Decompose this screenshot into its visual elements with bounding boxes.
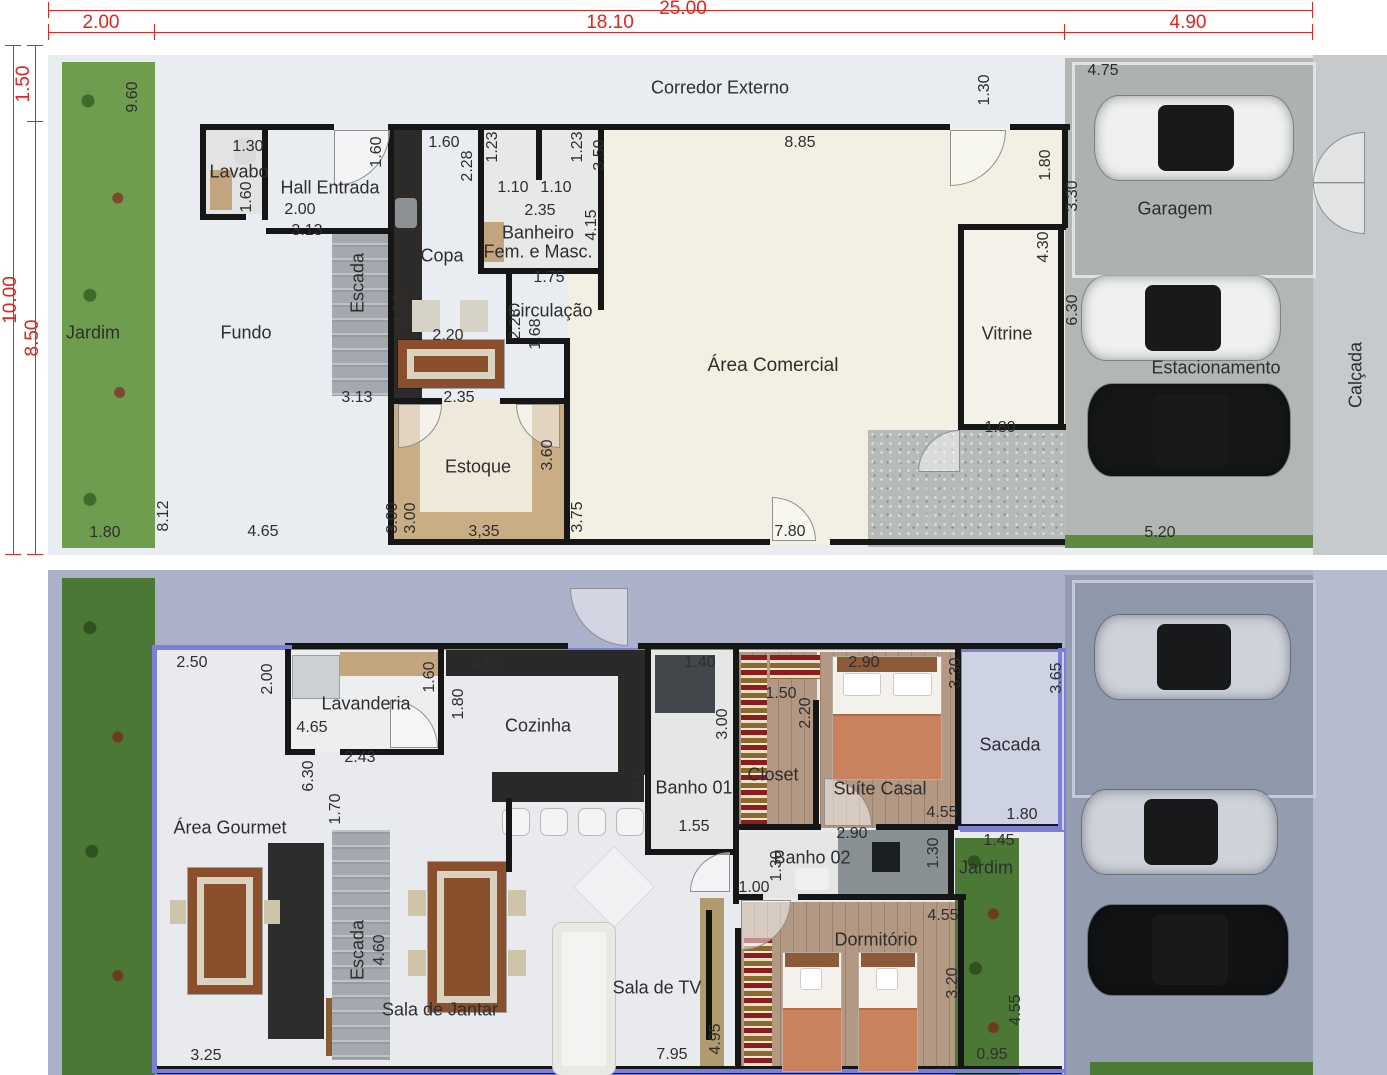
single-bed bbox=[858, 952, 918, 1072]
single-bed bbox=[782, 952, 842, 1072]
suite-wardrobe bbox=[741, 655, 767, 825]
bed-blanket bbox=[859, 1008, 917, 1071]
dimension-label: 3.20 bbox=[944, 967, 962, 998]
dimension-label: 1.50 bbox=[765, 685, 796, 703]
bed-pillow bbox=[876, 968, 898, 990]
dimension-label: 4.55 bbox=[926, 804, 957, 822]
room-label: Lavanderia bbox=[321, 694, 410, 715]
wall bbox=[798, 894, 966, 900]
dimension-label: 1.55 bbox=[678, 818, 709, 836]
gourmet-chair bbox=[170, 900, 186, 924]
dining-chair bbox=[508, 950, 526, 976]
kitchen-island bbox=[492, 772, 644, 802]
dimension-label: 3.25 bbox=[190, 1047, 221, 1065]
dimension-label: 3.00 bbox=[714, 708, 732, 739]
banho02-sink bbox=[795, 868, 829, 890]
dorm-wardrobe bbox=[744, 938, 772, 1070]
dimension-label: 2.43 bbox=[344, 749, 375, 767]
bar-stool bbox=[578, 808, 606, 836]
dining-chair bbox=[408, 890, 426, 916]
dimension-label: 4.55 bbox=[1007, 994, 1025, 1025]
dimension-label: 2.00 bbox=[259, 663, 277, 694]
wall bbox=[948, 830, 954, 898]
dining-table bbox=[428, 862, 506, 1012]
wall bbox=[152, 645, 292, 649]
dimension-label: 3.98 bbox=[471, 654, 502, 672]
wall bbox=[285, 749, 315, 755]
gourmet-counter bbox=[268, 843, 324, 1039]
wall bbox=[735, 824, 821, 830]
dimension-label: 4.95 bbox=[707, 1023, 725, 1054]
bed-pillow bbox=[843, 673, 882, 696]
dimension-label: 2.20 bbox=[797, 697, 815, 728]
car-roof-glass bbox=[1157, 624, 1231, 690]
sofa bbox=[552, 922, 616, 1075]
wall bbox=[645, 643, 651, 855]
floorplan-canvas: 25.002.0018.104.901.5010.008.50 9.60Corr… bbox=[0, 0, 1387, 1075]
bed-pillow bbox=[800, 968, 822, 990]
gourmet-table bbox=[188, 868, 262, 994]
room-label: Escada bbox=[348, 920, 369, 980]
dimension-label: 7.95 bbox=[656, 1046, 687, 1064]
dimension-label: 4.55 bbox=[927, 907, 958, 925]
room-label: Suíte Casal bbox=[833, 779, 926, 800]
wall bbox=[285, 643, 291, 753]
bed-headboard bbox=[861, 953, 914, 967]
dimension-label: 2.50 bbox=[176, 654, 207, 672]
bar-stool bbox=[616, 808, 644, 836]
double-bed bbox=[832, 656, 942, 780]
dimension-label: 1.80 bbox=[450, 688, 468, 719]
room-label: Closet bbox=[747, 765, 798, 786]
upper-floor-plan: 2.502.00Lavanderia4.651.603.981.80Cozinh… bbox=[0, 0, 1387, 1075]
wall bbox=[285, 643, 568, 649]
wall bbox=[638, 643, 1062, 649]
car-black bbox=[1088, 905, 1288, 995]
room-label: Banho 01 bbox=[655, 778, 732, 799]
dimension-label: 2.90 bbox=[836, 825, 867, 843]
dimension-label: 1.60 bbox=[421, 661, 439, 692]
room-label: Sacada bbox=[979, 735, 1040, 756]
tv-panel bbox=[706, 910, 712, 1040]
dimension-label: 4.60 bbox=[371, 934, 389, 965]
dimension-label: 1.80 bbox=[1006, 806, 1037, 824]
green-strip-bottom bbox=[1090, 1062, 1313, 1075]
dimension-label: 1.40 bbox=[684, 654, 715, 672]
room-label: Cozinha bbox=[505, 716, 571, 737]
wall bbox=[733, 643, 739, 904]
car-white bbox=[1082, 790, 1277, 874]
dining-chair bbox=[408, 950, 426, 976]
gourmet-chair bbox=[264, 900, 280, 924]
sidewalk bbox=[1313, 570, 1387, 1075]
room-label: Sala de TV bbox=[613, 978, 702, 999]
room-label: Dormitório bbox=[834, 930, 917, 951]
dimension-label: 0.95 bbox=[976, 1046, 1007, 1064]
suite-wardrobe-top bbox=[770, 655, 820, 679]
dimension-label: 1.45 bbox=[983, 832, 1014, 850]
dimension-label: 2.90 bbox=[848, 654, 879, 672]
washer bbox=[292, 655, 340, 699]
dining-chair bbox=[508, 890, 526, 916]
wall bbox=[958, 826, 1062, 830]
wall bbox=[506, 798, 512, 872]
wall bbox=[152, 645, 156, 1072]
dimension-label: 1.30 bbox=[768, 850, 786, 881]
kitchen-counter-right bbox=[618, 650, 648, 775]
dimension-label: 1.00 bbox=[738, 879, 769, 897]
bed-headboard bbox=[785, 953, 838, 967]
dimension-label: 3.30 bbox=[947, 657, 965, 688]
banho02-fixture bbox=[872, 842, 900, 872]
dimension-label: 3.65 bbox=[1048, 662, 1066, 693]
room-label: Jardim bbox=[959, 858, 1013, 879]
wall bbox=[438, 643, 444, 753]
car-roof-glass bbox=[1144, 799, 1218, 865]
car-roof-glass bbox=[1152, 915, 1228, 985]
dimension-label: 6.30 bbox=[300, 760, 318, 791]
garden-strip bbox=[62, 578, 155, 1075]
dimension-label: 4.65 bbox=[296, 719, 327, 737]
car-white bbox=[1095, 615, 1290, 699]
bed-pillow bbox=[893, 673, 932, 696]
dimension-label: 1.70 bbox=[327, 793, 345, 824]
dimension-label: 1.30 bbox=[925, 837, 943, 868]
bed-blanket bbox=[833, 714, 941, 779]
bed-blanket bbox=[783, 1008, 841, 1071]
bar-stool bbox=[540, 808, 568, 836]
room-label: Área Gourmet bbox=[173, 818, 286, 839]
room-label: Sala de Jantar bbox=[382, 1000, 498, 1021]
dimension-label: 3.15 bbox=[631, 769, 649, 800]
